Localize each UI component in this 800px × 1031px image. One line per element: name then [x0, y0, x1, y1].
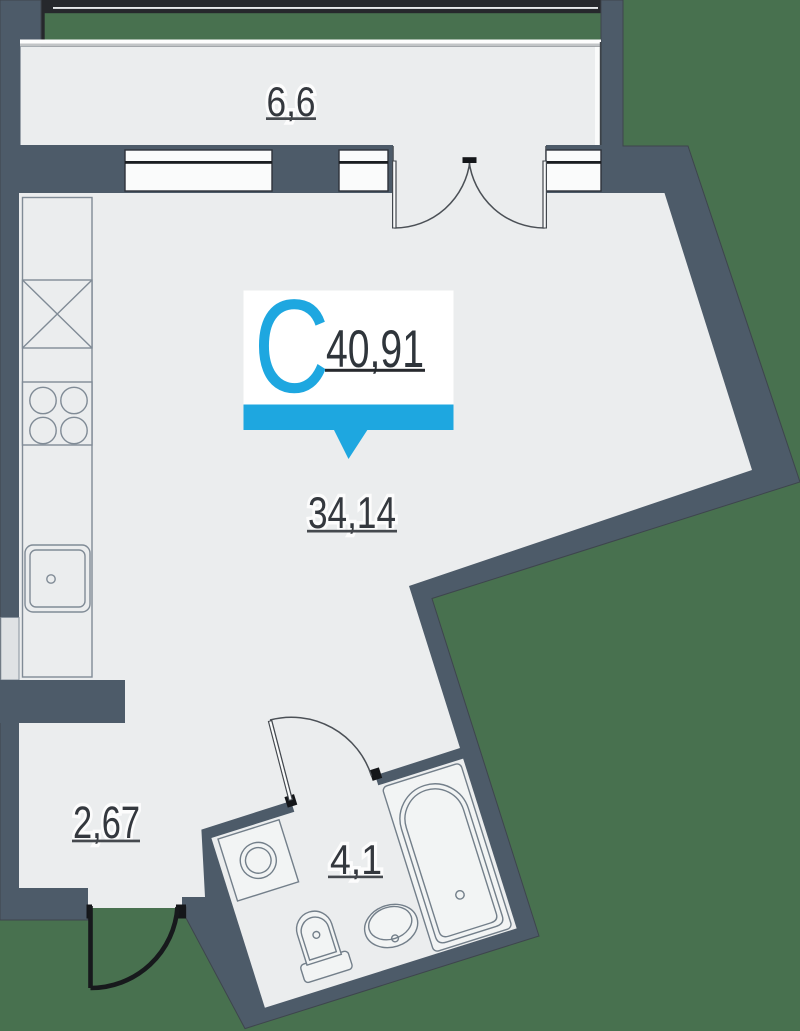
svg-text:С: С	[254, 273, 330, 421]
